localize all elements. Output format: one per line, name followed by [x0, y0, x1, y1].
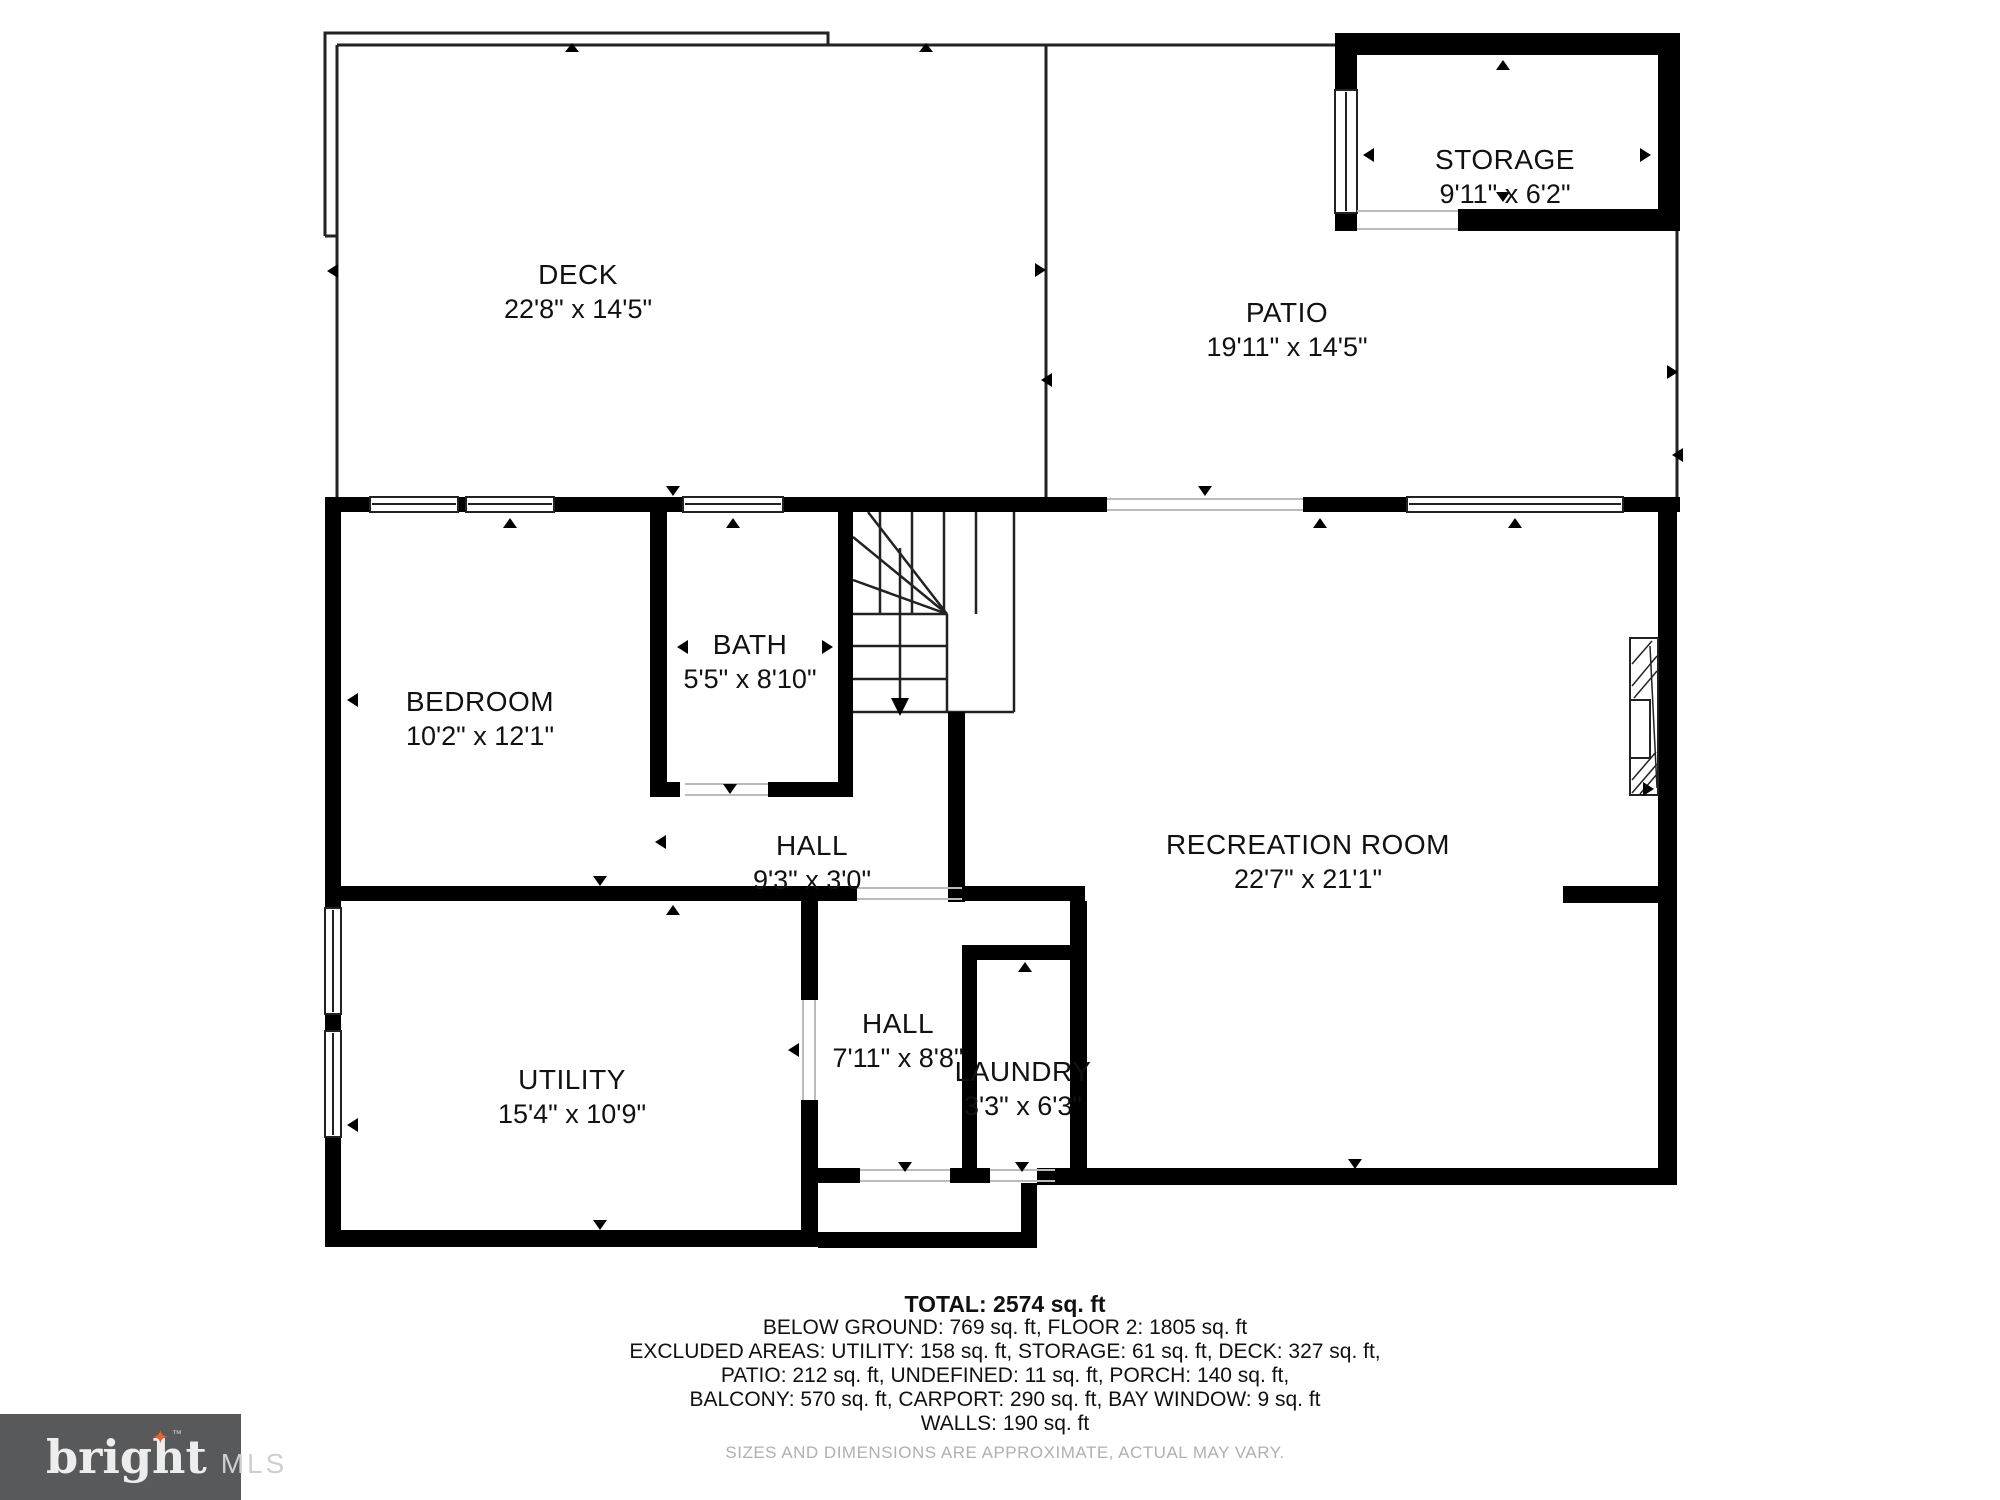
room-label-bath: BATH 5'5" x 8'10" [683, 628, 816, 696]
fireplace [1630, 638, 1658, 795]
summary-line: BELOW GROUND: 769 sq. ft, FLOOR 2: 1805 … [629, 1316, 1380, 1340]
logo-mls-text: MLS [221, 1450, 288, 1478]
room-label-deck: DECK 22'8" x 14'5" [504, 258, 652, 326]
room-dims: 19'11" x 14'5" [1206, 330, 1367, 364]
room-label-utility: UTILITY 15'4" x 10'9" [498, 1063, 646, 1131]
room-name: DECK [504, 258, 652, 292]
total-area: TOTAL: 2574 sq. ft [629, 1292, 1380, 1316]
room-dims: 9'3" x 3'0" [753, 863, 871, 897]
room-name: PATIO [1206, 296, 1367, 330]
floorplan-drawing [0, 0, 2000, 1500]
room-label-hall-lower: HALL 7'11" x 8'8" [832, 1007, 963, 1075]
summary-line: WALLS: 190 sq. ft [629, 1412, 1380, 1436]
room-name: RECREATION ROOM [1166, 828, 1450, 862]
stairs-down-arrow-icon [891, 698, 909, 716]
room-label-hall-upper: HALL 9'3" x 3'0" [753, 829, 871, 897]
staircase [853, 512, 1014, 712]
room-dims: 7'11" x 8'8" [832, 1041, 963, 1075]
room-dims: 22'8" x 14'5" [504, 292, 652, 326]
room-name: HALL [753, 829, 871, 863]
floorplan-page: DECK 22'8" x 14'5" STORAGE 9'11" x 6'2" … [0, 0, 2000, 1500]
summary-line: EXCLUDED AREAS: UTILITY: 158 sq. ft, STO… [629, 1340, 1380, 1364]
room-label-recreation-room: RECREATION ROOM 22'7" x 21'1" [1166, 828, 1450, 896]
room-dims: 3'3" x 6'3" [955, 1089, 1092, 1123]
room-name: UTILITY [498, 1063, 646, 1097]
room-dims: 10'2" x 12'1" [406, 719, 554, 753]
room-dims: 22'7" x 21'1" [1166, 862, 1450, 896]
logo-brand-text: bright [46, 1434, 207, 1480]
summary-line: PATIO: 212 sq. ft, UNDEFINED: 11 sq. ft,… [629, 1364, 1380, 1388]
room-label-bedroom: BEDROOM 10'2" x 12'1" [406, 685, 554, 753]
room-name: LAUNDRY [955, 1055, 1092, 1089]
trademark-symbol: ™ [172, 1430, 182, 1440]
room-name: BEDROOM [406, 685, 554, 719]
brightmls-logo: bright MLS [0, 1414, 241, 1500]
room-dims: 15'4" x 10'9" [498, 1097, 646, 1131]
room-dims: 9'11" x 6'2" [1435, 177, 1575, 211]
room-label-laundry: LAUNDRY 3'3" x 6'3" [955, 1055, 1092, 1123]
room-name: BATH [683, 628, 816, 662]
star-icon: ✦ [152, 1428, 169, 1448]
summary-line: BALCONY: 570 sq. ft, CARPORT: 290 sq. ft… [629, 1388, 1380, 1412]
room-dims: 5'5" x 8'10" [683, 662, 816, 696]
area-summary: TOTAL: 2574 sq. ft BELOW GROUND: 769 sq.… [629, 1292, 1380, 1436]
room-name: STORAGE [1435, 143, 1575, 177]
disclaimer-text: SIZES AND DIMENSIONS ARE APPROXIMATE, AC… [725, 1443, 1284, 1463]
room-label-storage: STORAGE 9'11" x 6'2" [1435, 143, 1575, 211]
room-name: HALL [832, 1007, 963, 1041]
room-label-patio: PATIO 19'11" x 14'5" [1206, 296, 1367, 364]
